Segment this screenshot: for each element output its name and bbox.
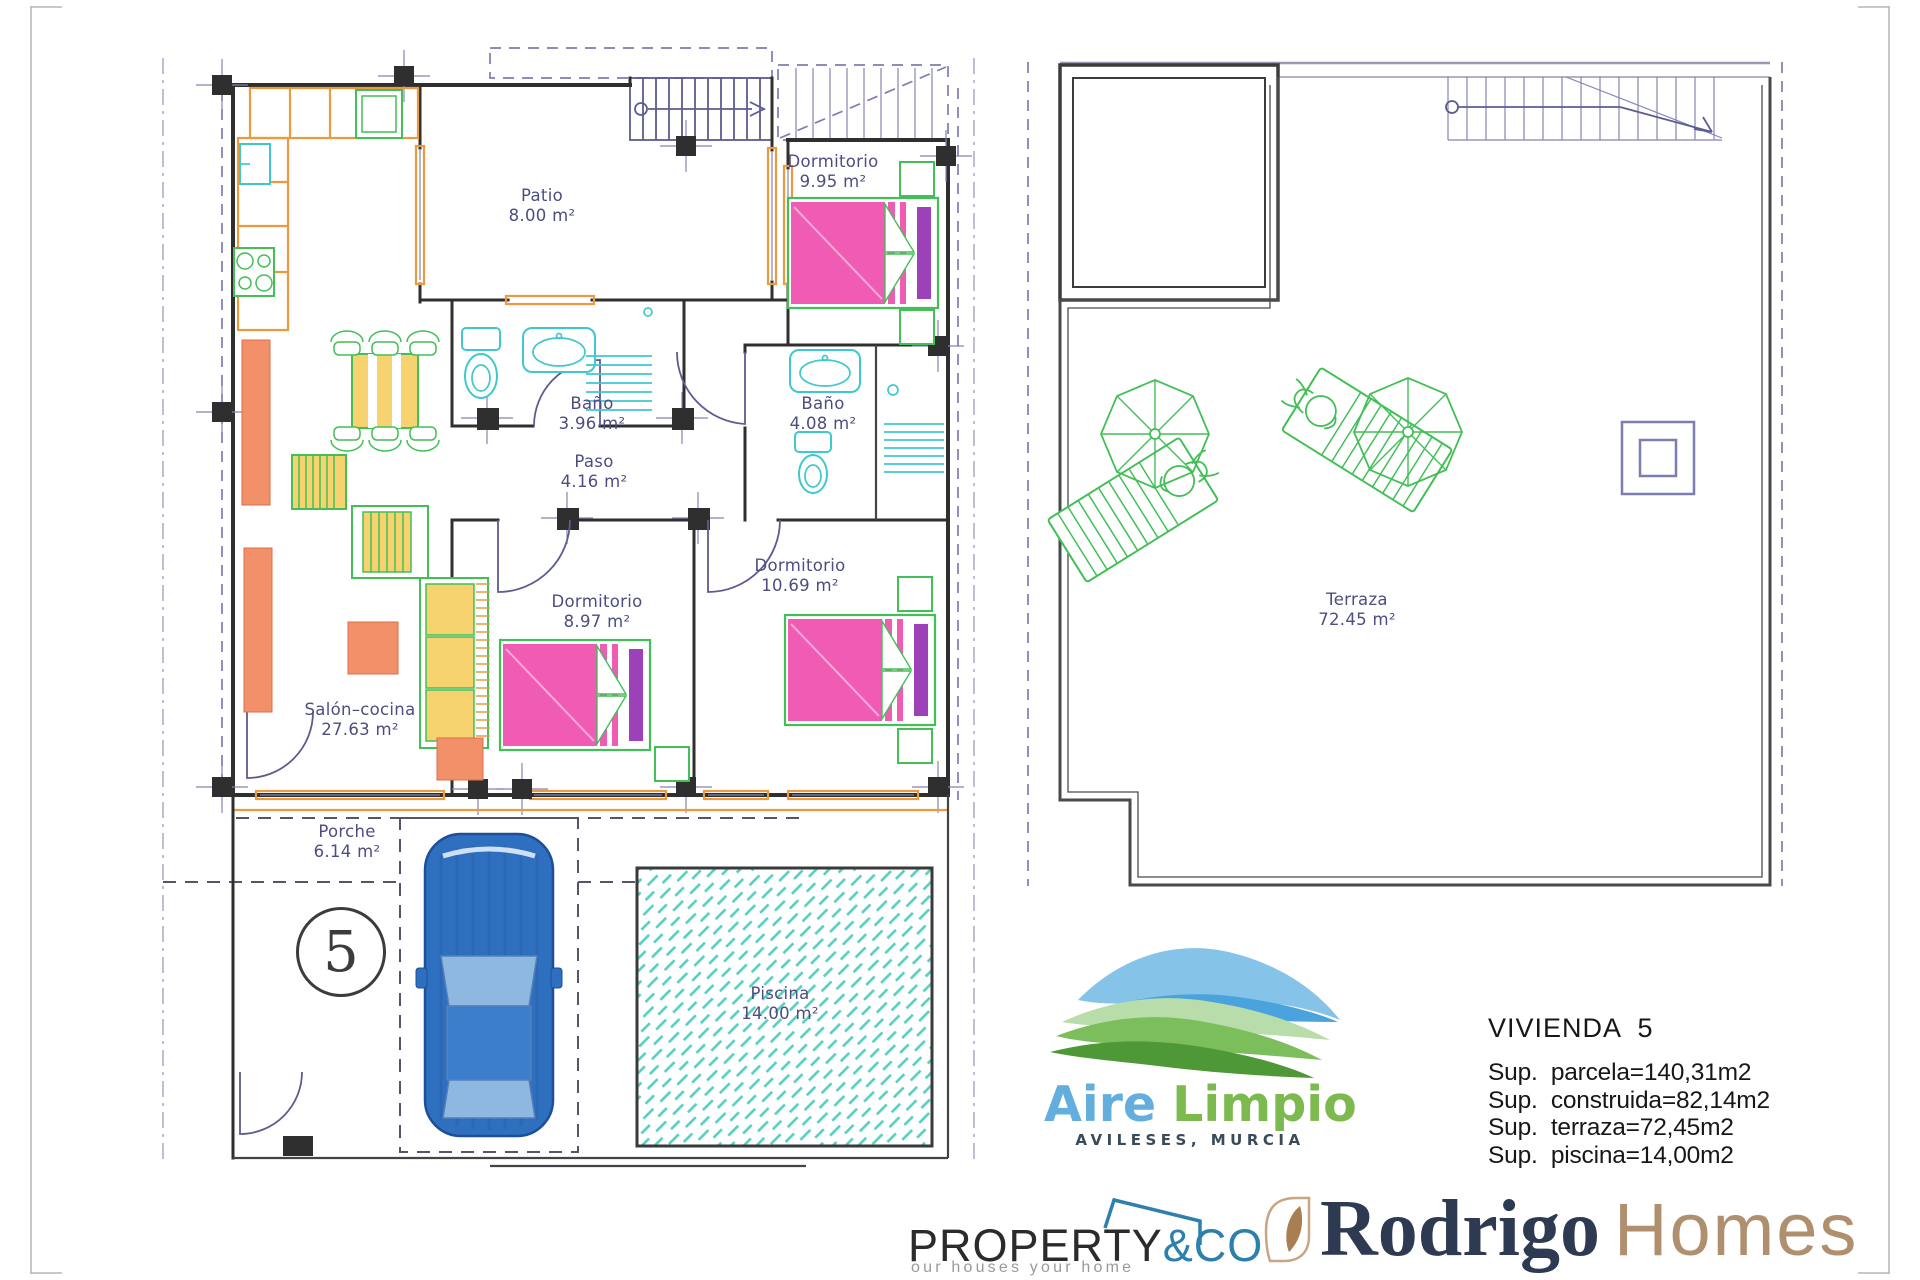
summary-line: Sup. parcela=140,31m2 (1488, 1059, 1770, 1087)
unit-number: 5 (323, 920, 359, 985)
room-name: Dormitorio (755, 556, 846, 576)
room-label-piscina: Piscina 14.00 m² (741, 984, 819, 1024)
room-area: 14.00 m² (741, 1004, 819, 1024)
aire-limpio-logo-icon (1050, 948, 1340, 1078)
room-area: 4.16 m² (561, 472, 628, 492)
room-area: 10.69 m² (755, 576, 846, 596)
sun-lounger-icon (1268, 359, 1462, 512)
armchair-icon (292, 455, 428, 578)
rodrigo-homes-wordmark: Rodrigo Homes (1320, 1184, 1858, 1275)
homes-word: Homes (1614, 1187, 1858, 1272)
room-name: Paso (561, 452, 628, 472)
room-name: Terraza (1318, 590, 1396, 610)
room-label-salon-cocina: Salón–cocina 27.63 m² (305, 700, 416, 740)
car-icon (416, 834, 562, 1136)
co-word: &CO (1163, 1220, 1264, 1271)
shower-icon (884, 424, 944, 472)
room-label-terraza: Terraza 72.45 m² (1318, 590, 1396, 630)
summary-line: Sup. piscina=14,00m2 (1488, 1142, 1770, 1170)
room-label-dormitorio-3: Dormitorio 10.69 m² (755, 556, 846, 596)
room-label-patio: Patio 8.00 m² (509, 186, 576, 226)
room-label-bano-2: Baño 4.08 m² (790, 394, 857, 434)
summary-line: Sup. construida=82,14m2 (1488, 1087, 1770, 1115)
limpio-word: Limpio (1172, 1076, 1357, 1133)
summary-title: VIVIENDA 5 (1488, 1013, 1770, 1044)
room-area: 4.08 m² (790, 414, 857, 434)
hob-icon (234, 248, 274, 296)
room-area: 6.14 m² (314, 842, 381, 862)
room-area: 72.45 m² (1318, 610, 1396, 630)
room-area: 27.63 m² (305, 720, 416, 740)
room-name: Dormitorio (788, 152, 879, 172)
room-area: 9.95 m² (788, 172, 879, 192)
plan-sheet: Patio 8.00 m² Dormitorio 9.95 m² Baño 3.… (0, 0, 1920, 1280)
summary-line: Sup. terraza=72,45m2 (1488, 1114, 1770, 1142)
double-bed-icon (500, 640, 650, 750)
sun-lounger-icon (1048, 380, 1232, 582)
washbasin-icon (790, 350, 898, 395)
double-bed-icon (788, 198, 938, 308)
room-label-porche: Porche 6.14 m² (314, 822, 381, 862)
kitchen-sink-icon (240, 144, 270, 184)
unit-number-badge: 5 (296, 907, 386, 997)
room-name: Salón–cocina (305, 700, 416, 720)
room-name: Patio (509, 186, 576, 206)
room-name: Baño (559, 394, 626, 414)
room-name: Baño (790, 394, 857, 414)
dining-table-icon (331, 331, 439, 451)
property-co-tagline: our houses your home (911, 1259, 1134, 1277)
room-label-bano-1: Baño 3.96 m² (559, 394, 626, 434)
room-label-dormitorio-2: Dormitorio 8.97 m² (552, 592, 643, 632)
room-name: Piscina (741, 984, 819, 1004)
double-bed-icon (785, 615, 935, 725)
sofa-icon (420, 578, 490, 748)
aire-word: Aire (1044, 1076, 1156, 1133)
area-summary: VIVIENDA 5 Sup. parcela=140,31m2 Sup. co… (1488, 1013, 1770, 1169)
aire-limpio-location: AVILESES, MURCIA (1044, 1131, 1336, 1149)
terrace-plan (1028, 62, 1782, 886)
room-name: Dormitorio (552, 592, 643, 612)
stairs-icon (1446, 77, 1722, 140)
room-area: 3.96 m² (559, 414, 626, 434)
patio-void (1060, 65, 1278, 300)
room-label-dormitorio-1: Dormitorio 9.95 m² (788, 152, 879, 192)
rodrigo-leaf-icon (1266, 1198, 1309, 1261)
aire-limpio-wordmark: AireLimpio (1044, 1076, 1336, 1133)
sideboard (242, 340, 272, 712)
stairs-icon (630, 78, 772, 140)
room-name: Porche (314, 822, 381, 842)
room-area: 8.97 m² (552, 612, 643, 632)
rodrigo-word: Rodrigo (1320, 1184, 1600, 1275)
fridge-icon (356, 90, 402, 138)
toilet-icon (462, 328, 500, 398)
washbasin-icon (523, 308, 652, 372)
room-area: 8.00 m² (509, 206, 576, 226)
skylight (1622, 422, 1694, 494)
room-label-paso: Paso 4.16 m² (561, 452, 628, 492)
toilet-icon (795, 432, 831, 493)
